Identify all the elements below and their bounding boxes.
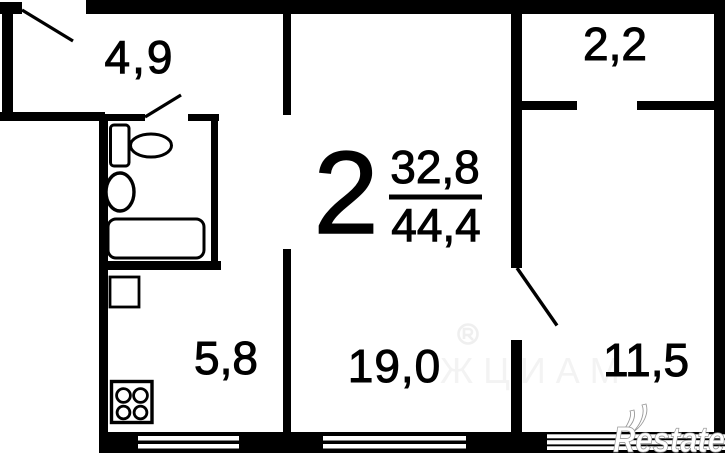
- svg-text:Restate: Restate: [613, 419, 725, 453]
- svg-text:19,0: 19,0: [348, 340, 442, 392]
- svg-text:4,9: 4,9: [105, 31, 175, 83]
- svg-text:2,2: 2,2: [583, 18, 647, 70]
- svg-text:2: 2: [313, 127, 378, 258]
- svg-text:5,8: 5,8: [194, 332, 258, 384]
- svg-text:32,8: 32,8: [390, 141, 480, 193]
- svg-text:ЖЦИАМ: ЖЦИАМ: [440, 350, 630, 391]
- svg-text:44,4: 44,4: [391, 199, 481, 251]
- svg-text:11,5: 11,5: [603, 334, 689, 386]
